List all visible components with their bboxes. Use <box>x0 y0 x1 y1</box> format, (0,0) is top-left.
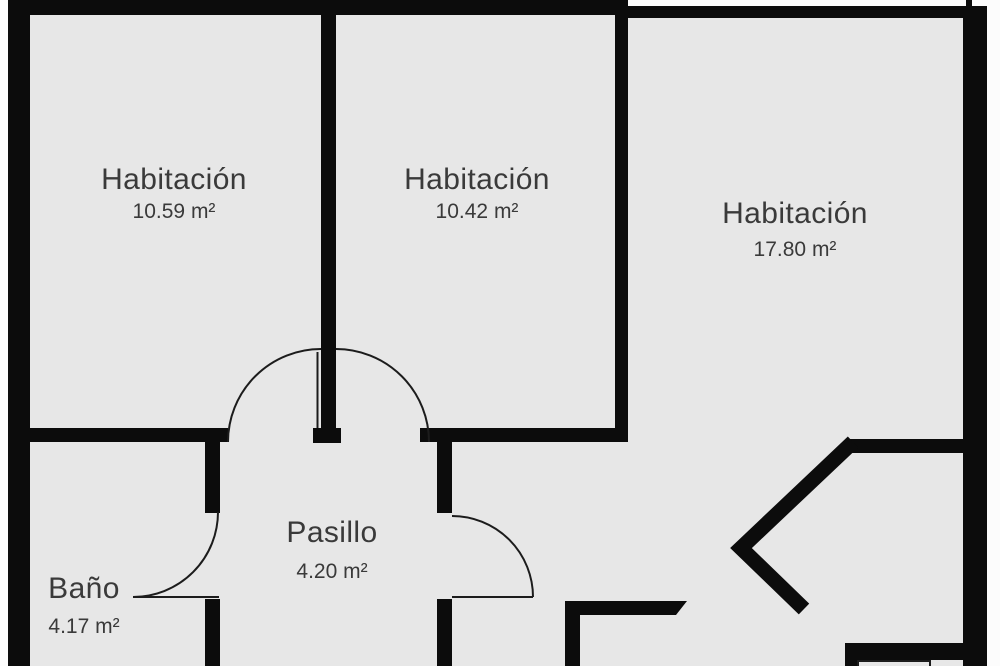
wall-bottom-l-horizontal <box>565 601 687 615</box>
room-area: 4.20 m² <box>286 558 377 586</box>
floorplan: Habitación 10.59 m² Habitación 10.42 m² … <box>0 0 1000 666</box>
wall-right <box>963 6 987 666</box>
room-label-bano: Baño 4.17 m² <box>48 571 120 641</box>
background-notch <box>628 0 987 6</box>
wall-bano-stub-top <box>205 442 220 513</box>
wall-left <box>8 0 30 666</box>
room-name: Habitación <box>101 162 247 198</box>
wall-top-left <box>8 0 628 15</box>
room-label-habitacion-3: Habitación 17.80 m² <box>722 196 868 264</box>
room-area: 10.42 m² <box>404 198 550 226</box>
room-name: Habitación <box>722 196 868 232</box>
room-label-pasillo: Pasillo 4.20 m² <box>286 515 377 586</box>
room-label-habitacion-2: Habitación 10.42 m² <box>404 162 550 226</box>
wall-pasillo-stub-bottom <box>437 599 452 666</box>
wall-mid-center <box>420 428 628 442</box>
wall-pasillo-stub-top <box>437 442 452 513</box>
wall-divider-hab1-hab2-cap <box>313 428 341 443</box>
floorplan-drawing <box>0 0 1000 666</box>
wall-mid-right <box>847 439 963 453</box>
room-name: Baño <box>48 571 120 607</box>
wall-divider-hab2-hab3 <box>615 6 628 442</box>
wall-top-right <box>615 6 987 18</box>
fixture-outline <box>858 661 930 666</box>
wall-bottom-l-vertical <box>565 601 580 666</box>
floor-area <box>8 0 987 666</box>
wall-bano-stub-bottom <box>205 599 220 666</box>
room-area: 4.17 m² <box>48 613 120 641</box>
room-area: 17.80 m² <box>722 236 868 264</box>
wall-divider-hab1-hab2 <box>321 0 336 432</box>
room-label-habitacion-1: Habitación 10.59 m² <box>101 162 247 226</box>
room-name: Pasillo <box>286 515 377 551</box>
wall-bottom-right <box>845 643 963 660</box>
room-area: 10.59 m² <box>101 198 247 226</box>
room-name: Habitación <box>404 162 550 198</box>
wall-mid-left <box>30 428 228 442</box>
